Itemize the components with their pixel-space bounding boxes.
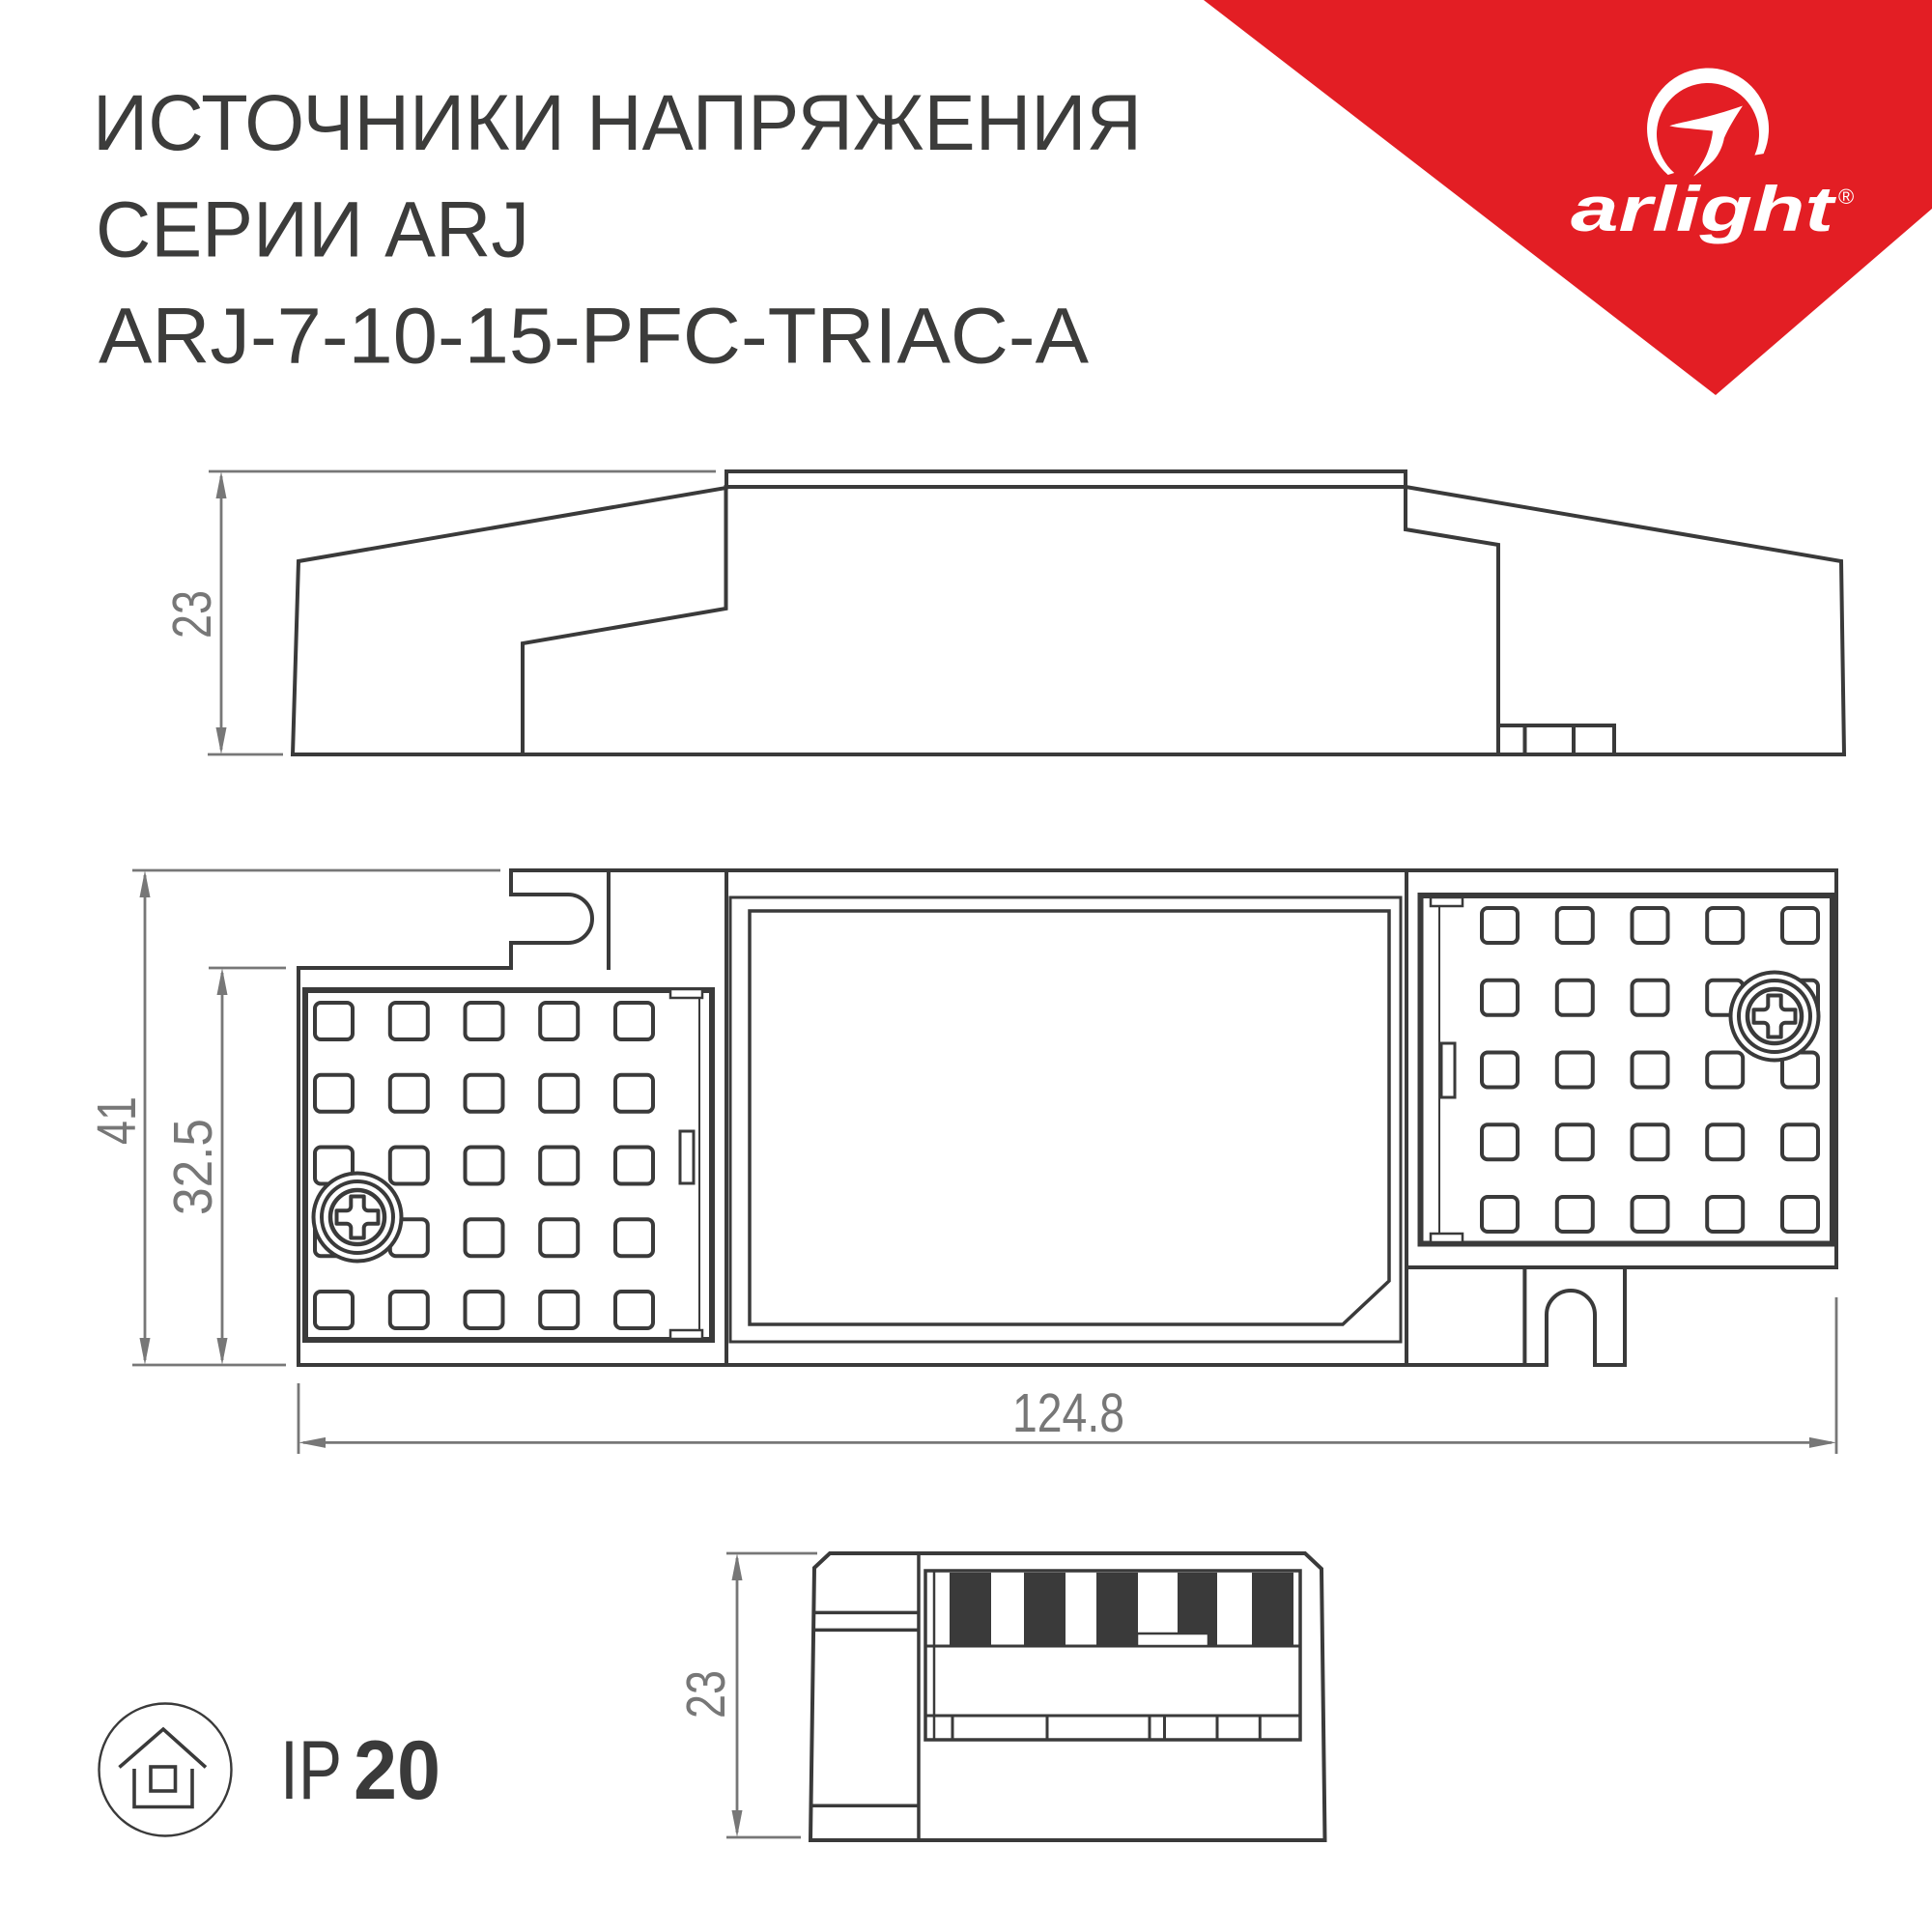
svg-text:ARJ-7-10-15-PFC-TRIAC-A: ARJ-7-10-15-PFC-TRIAC-A — [99, 293, 1089, 381]
svg-text:41: 41 — [86, 1096, 148, 1145]
svg-text:IP: IP — [280, 1724, 342, 1817]
svg-text:124.8: 124.8 — [1012, 1382, 1124, 1444]
svg-text:23: 23 — [161, 590, 223, 639]
svg-text:ИСТОЧНИКИ НАПРЯЖЕНИЯ: ИСТОЧНИКИ НАПРЯЖЕНИЯ — [93, 79, 1142, 167]
svg-text:®: ® — [1838, 185, 1854, 209]
svg-text:20: 20 — [354, 1724, 440, 1817]
svg-text:arlight: arlight — [1571, 173, 1837, 244]
svg-text:23: 23 — [675, 1670, 737, 1719]
svg-text:32.5: 32.5 — [162, 1119, 224, 1215]
svg-text:СЕРИИ ARJ: СЕРИИ ARJ — [96, 186, 529, 274]
